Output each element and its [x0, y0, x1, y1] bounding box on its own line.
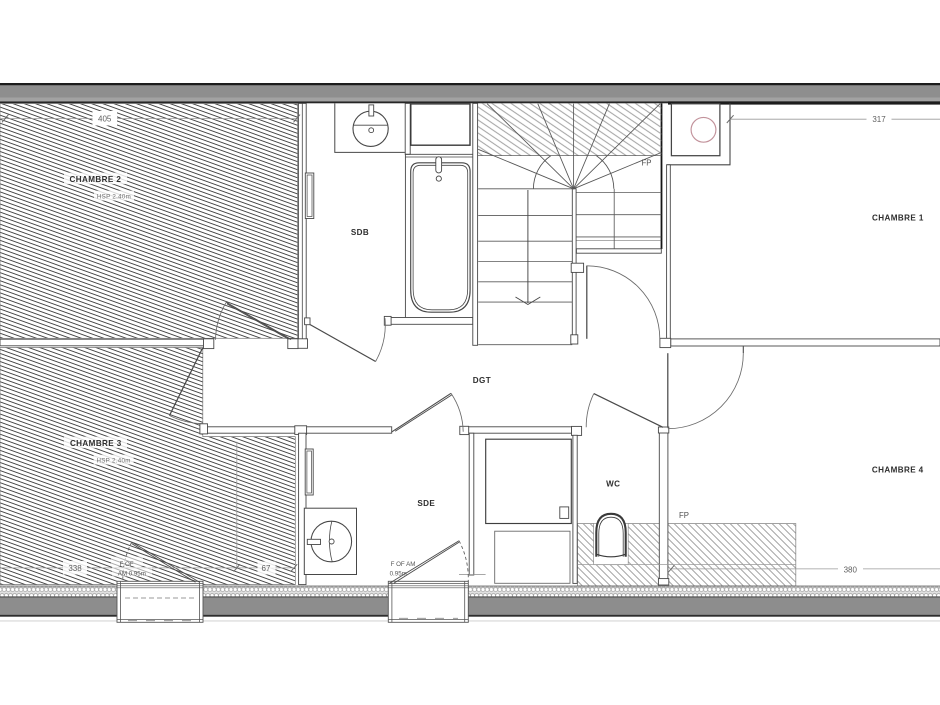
svg-text:FP: FP: [642, 159, 652, 168]
svg-text:DGT: DGT: [473, 376, 491, 385]
svg-text:F OF: F OF: [119, 561, 133, 568]
svg-text:67: 67: [262, 564, 271, 573]
svg-text:F OF AM: F OF AM: [391, 561, 416, 568]
svg-text:317: 317: [872, 115, 886, 124]
svg-text:338: 338: [68, 564, 82, 573]
svg-text:SDE: SDE: [417, 499, 435, 508]
svg-text:CHAMBRE 3: CHAMBRE 3: [70, 439, 122, 448]
svg-text:380: 380: [844, 565, 858, 574]
svg-text:HSP 2.40m: HSP 2.40m: [96, 458, 130, 465]
svg-text:CHAMBRE 1: CHAMBRE 1: [872, 213, 924, 222]
svg-text:0.95m: 0.95m: [390, 570, 407, 577]
svg-text:405: 405: [98, 115, 112, 124]
svg-text:CHAMBRE 2: CHAMBRE 2: [70, 175, 122, 184]
svg-text:AM 0.95m: AM 0.95m: [118, 571, 146, 578]
svg-text:FP: FP: [679, 511, 689, 520]
svg-text:WC: WC: [606, 479, 620, 488]
svg-text:HSP 2.40m: HSP 2.40m: [97, 194, 131, 201]
svg-text:SDB: SDB: [351, 228, 369, 237]
svg-text:CHAMBRE 4: CHAMBRE 4: [872, 465, 924, 474]
